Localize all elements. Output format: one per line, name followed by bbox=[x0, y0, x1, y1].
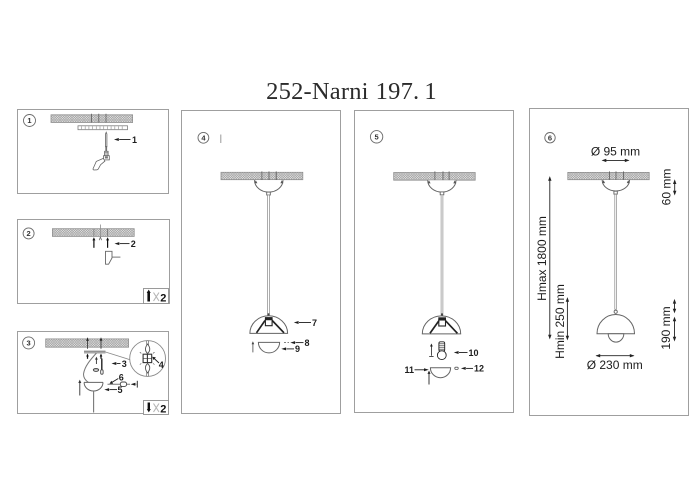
svg-text:1: 1 bbox=[132, 135, 137, 145]
svg-text:5: 5 bbox=[375, 133, 379, 142]
svg-text:190 mm: 190 mm bbox=[659, 306, 673, 349]
svg-text:Ø 230 mm: Ø 230 mm bbox=[587, 358, 643, 372]
svg-text:2: 2 bbox=[27, 229, 31, 238]
svg-text:9: 9 bbox=[295, 344, 300, 354]
svg-text:3: 3 bbox=[27, 339, 31, 348]
svg-text:2: 2 bbox=[131, 239, 136, 249]
svg-text:60 mm: 60 mm bbox=[660, 169, 674, 206]
svg-text:8: 8 bbox=[305, 338, 310, 348]
svg-text:3: 3 bbox=[122, 359, 127, 369]
svg-text:10: 10 bbox=[469, 348, 479, 358]
svg-text:2: 2 bbox=[160, 293, 166, 305]
svg-text:Ø 95 mm: Ø 95 mm bbox=[591, 145, 640, 159]
svg-text:6: 6 bbox=[119, 372, 124, 382]
svg-text:Hmin 250 mm: Hmin 250 mm bbox=[553, 284, 567, 359]
svg-text:1: 1 bbox=[27, 116, 31, 125]
svg-text:6: 6 bbox=[548, 133, 552, 142]
svg-text:12: 12 bbox=[474, 364, 484, 374]
svg-text:7: 7 bbox=[312, 318, 317, 328]
svg-text:2: 2 bbox=[160, 404, 166, 416]
svg-text:11: 11 bbox=[405, 365, 415, 375]
svg-text:4: 4 bbox=[159, 360, 164, 370]
svg-text:Hmax 1800 mm: Hmax 1800 mm bbox=[535, 216, 549, 301]
svg-text:252-Narni197.1: 252-Narni197.1 bbox=[266, 78, 437, 105]
